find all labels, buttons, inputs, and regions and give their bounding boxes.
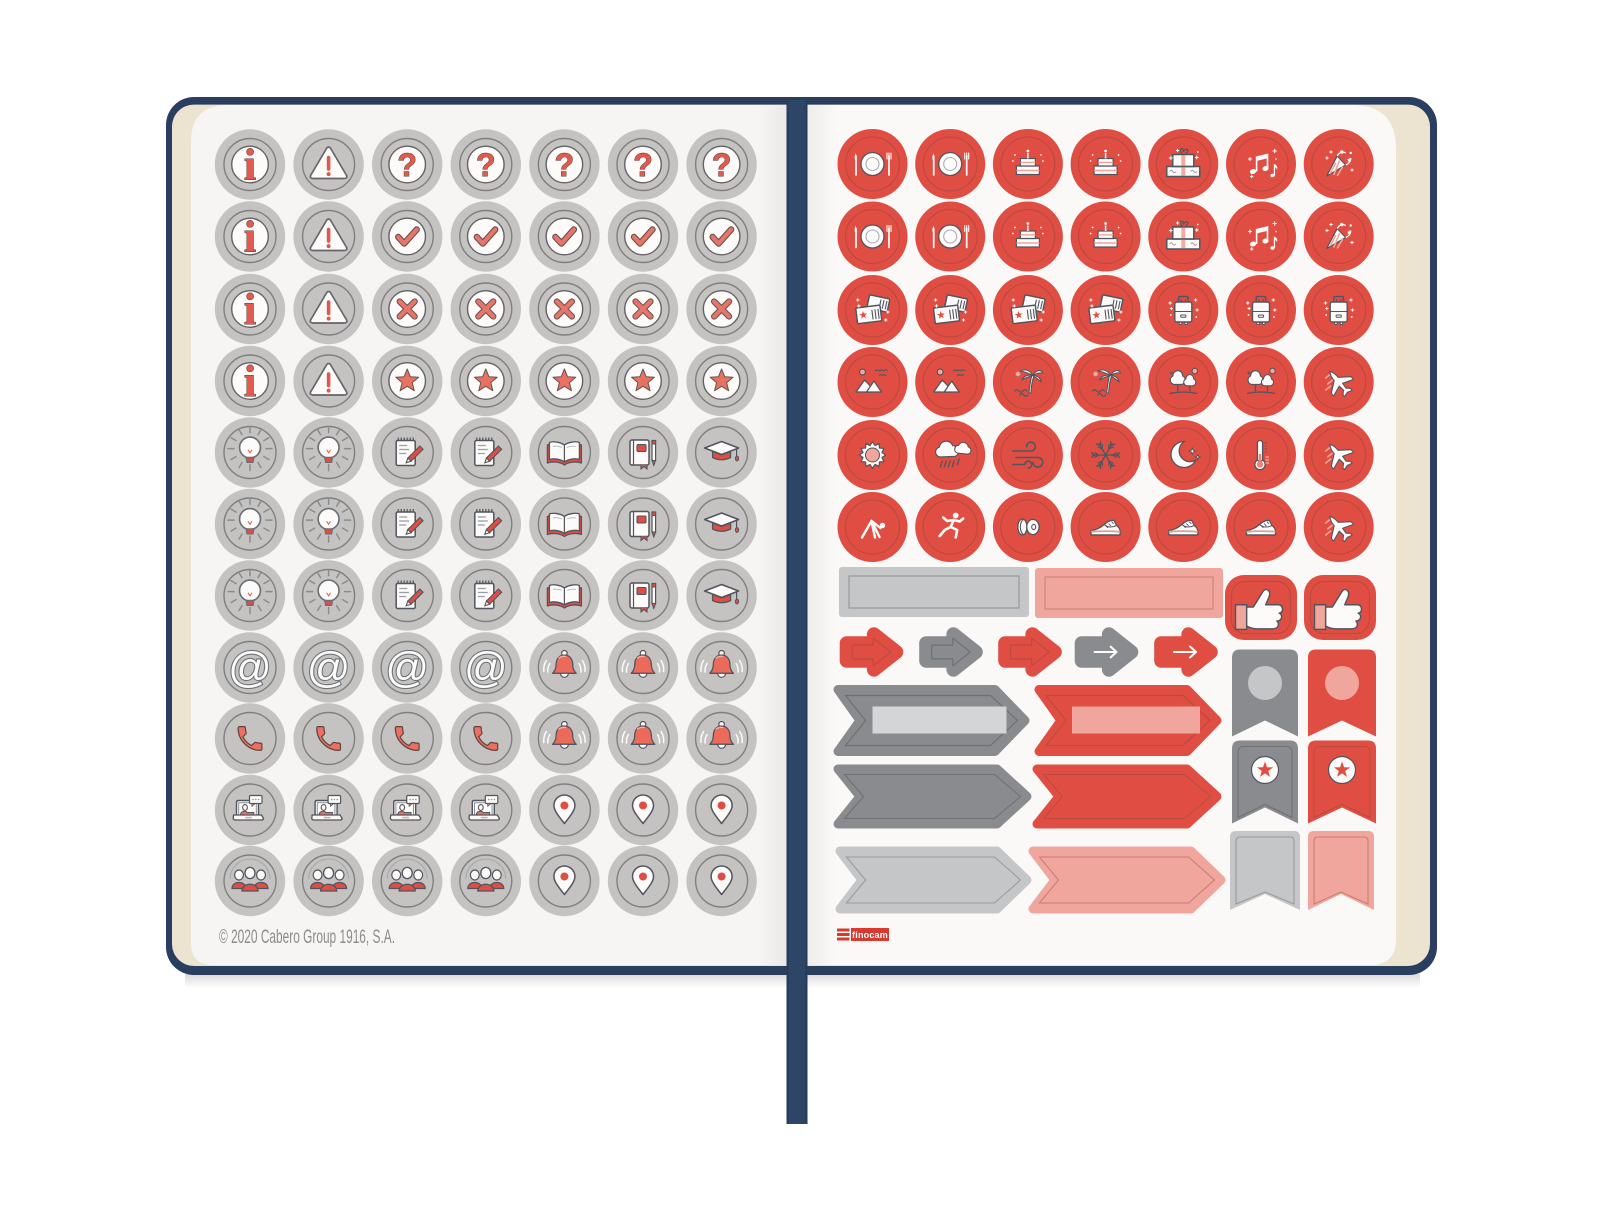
svg-text:© 2020 Cabero Group 1916, S.A.: © 2020 Cabero Group 1916, S.A. (219, 926, 395, 948)
svg-text:finocam: finocam (852, 930, 888, 940)
